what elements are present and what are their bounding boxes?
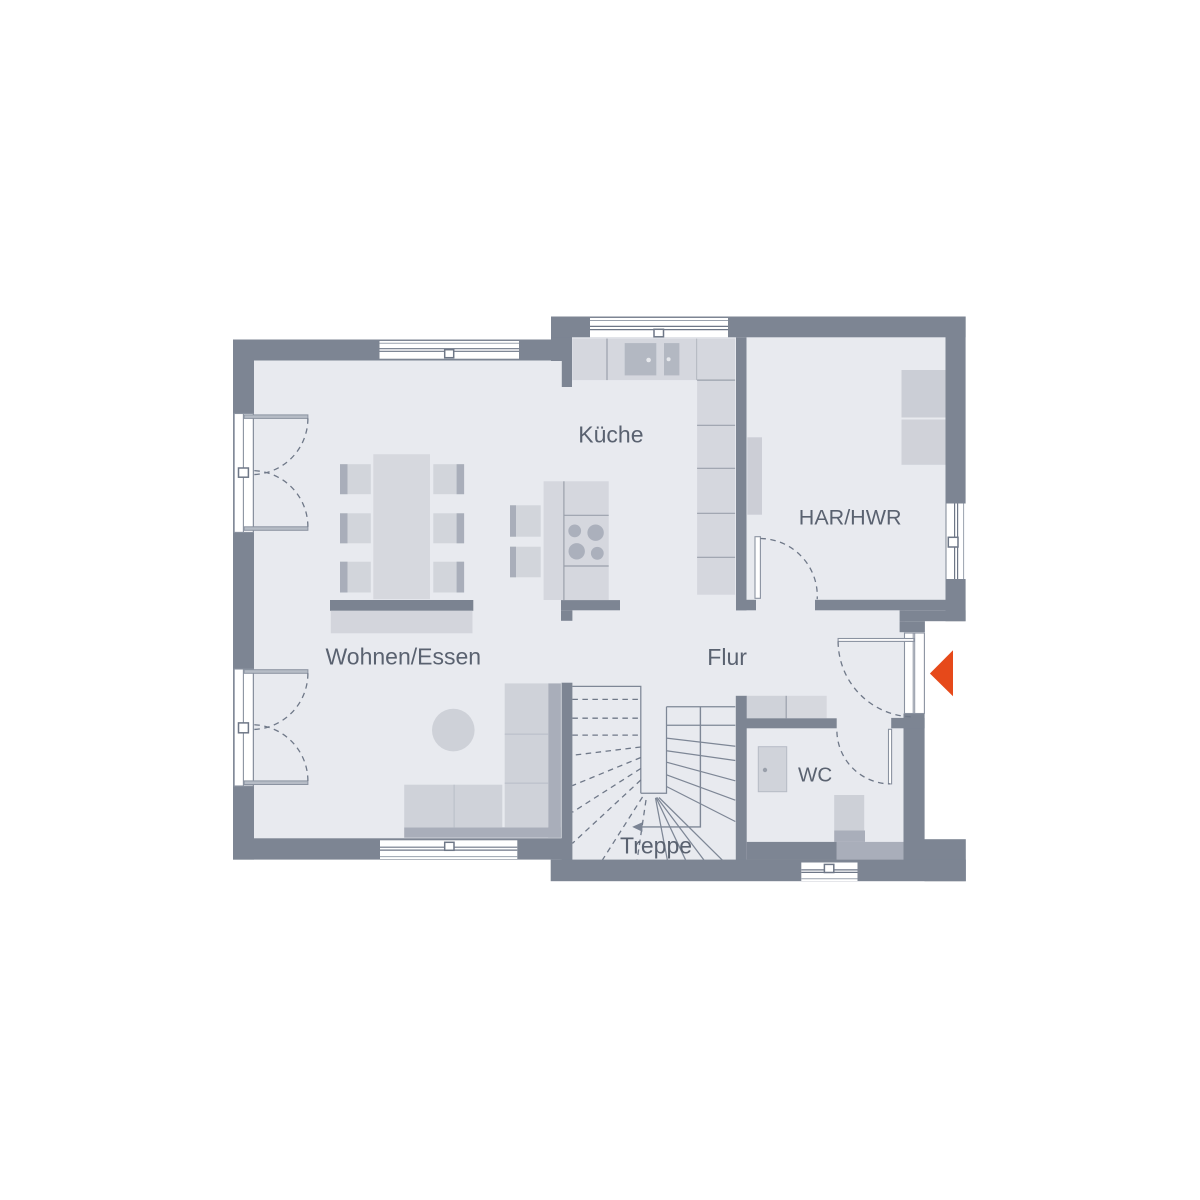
- svg-text:Treppe: Treppe: [620, 833, 692, 859]
- svg-text:HAR/HWR: HAR/HWR: [799, 506, 902, 530]
- svg-text:Küche: Küche: [578, 422, 643, 448]
- svg-text:Wohnen/Essen: Wohnen/Essen: [326, 643, 482, 669]
- svg-text:WC: WC: [798, 764, 832, 787]
- svg-text:Flur: Flur: [707, 644, 747, 670]
